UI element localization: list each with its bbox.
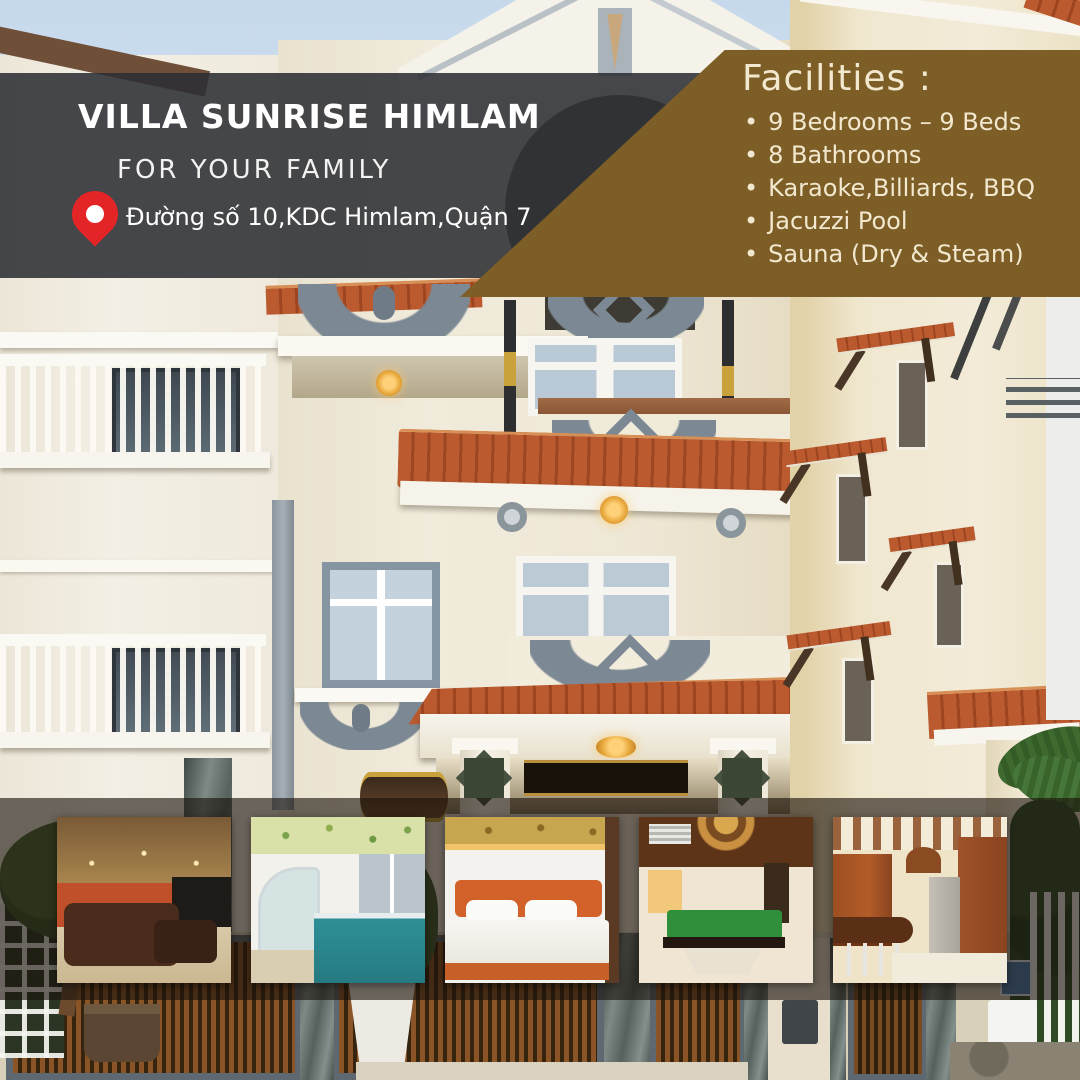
kitchen-floor [892,953,1007,983]
thumbnail-bedroom [445,817,619,983]
bullet: • [744,174,758,202]
facility-label: Sauna (Dry & Steam) [768,240,1023,268]
facility-item: •9 Bedrooms – 9 Beds [744,106,1035,139]
balcony-railing-lower [0,634,266,738]
facility-label: 8 Bathrooms [768,141,921,169]
downlight-1 [376,370,402,396]
left-molding [0,560,278,572]
window-awning-3 [889,526,982,593]
bullet: • [744,207,758,235]
bullet: • [744,141,758,169]
thumbnail-jacuzzi-pool [251,817,425,983]
left-cornice [0,332,278,348]
bed-duvet [445,920,609,966]
karaoke-ottoman [154,920,217,963]
porch-ceiling-lamp [596,736,636,758]
metal-railing-upper [1006,378,1080,418]
facilities-list: •9 Bedrooms – 9 Beds •8 Bathrooms •Karao… [744,106,1035,271]
facility-item: •8 Bathrooms [744,139,1035,172]
stone-base [950,1042,1080,1080]
bonsai-pot [84,1004,160,1062]
entrance-sign-band [524,760,688,796]
kitchen-fridge [929,877,960,953]
bedroom-led-cove [445,844,619,851]
billiards-light-panel [648,870,683,913]
kitchen-bar-counter [833,917,913,944]
location-pin-icon [62,181,127,246]
pin-hole [82,201,107,226]
pool-table-frame [663,937,785,949]
downlight-2 [600,496,628,524]
facility-label: Karaoke,Billiards, BBQ [768,174,1035,202]
billiards-ac-vent [649,824,691,844]
gray-pilaster [272,500,294,810]
pool-table-top [667,910,782,940]
villa-subtitle: FOR YOUR FAMILY [117,155,391,185]
facility-item: •Sauna (Dry & Steam) [744,238,1035,271]
pipe-gold-right [722,366,734,396]
poster-canvas: VILLA SUNRISE HIMLAM FOR YOUR FAMILY Đườ… [0,0,1080,1080]
kitchen-wood-arch [906,847,941,874]
bed-frame-orange [445,963,609,980]
facilities-heading: Facilities : [742,58,932,99]
thumbnail-karaoke-lounge [57,817,231,983]
facility-label: Jacuzzi Pool [768,207,907,235]
pool-window-wall [359,854,425,914]
bedroom-gold-ceiling [445,817,619,844]
intercom-panel [782,1000,818,1044]
villa-title: VILLA SUNRISE HIMLAM [78,97,541,136]
pool-deck [251,950,314,983]
window-center-2 [322,562,440,688]
pool-mosaic-ceiling [251,817,425,854]
facility-item: •Jacuzzi Pool [744,205,1035,238]
fan-keyhole-4 [352,704,370,732]
fan-keyhole-1 [373,286,395,320]
parapet-cap-marble [538,398,793,414]
thumbnail-billiards-room [639,817,813,983]
bullet: • [744,240,758,268]
thumbnail-kitchen [833,817,1007,983]
facility-item: •Karaoke,Billiards, BBQ [744,172,1035,205]
balcony-railing-upper [0,354,266,458]
jacuzzi-water [314,913,425,983]
vent-medallion-right [716,508,746,538]
balcony-slab-upper [0,452,270,468]
bullet: • [744,108,758,136]
entry-step [356,1062,748,1080]
pipe-gold-left [504,352,516,386]
vent-medallion-left [497,502,527,532]
kitchen-cabinets-right [958,837,1007,957]
karaoke-ceiling [57,817,231,883]
facility-label: 9 Bedrooms – 9 Beds [768,108,1021,136]
balcony-slab-lower [0,732,270,748]
villa-address: Đường số 10,KDC Himlam,Quận 7 [126,203,532,231]
